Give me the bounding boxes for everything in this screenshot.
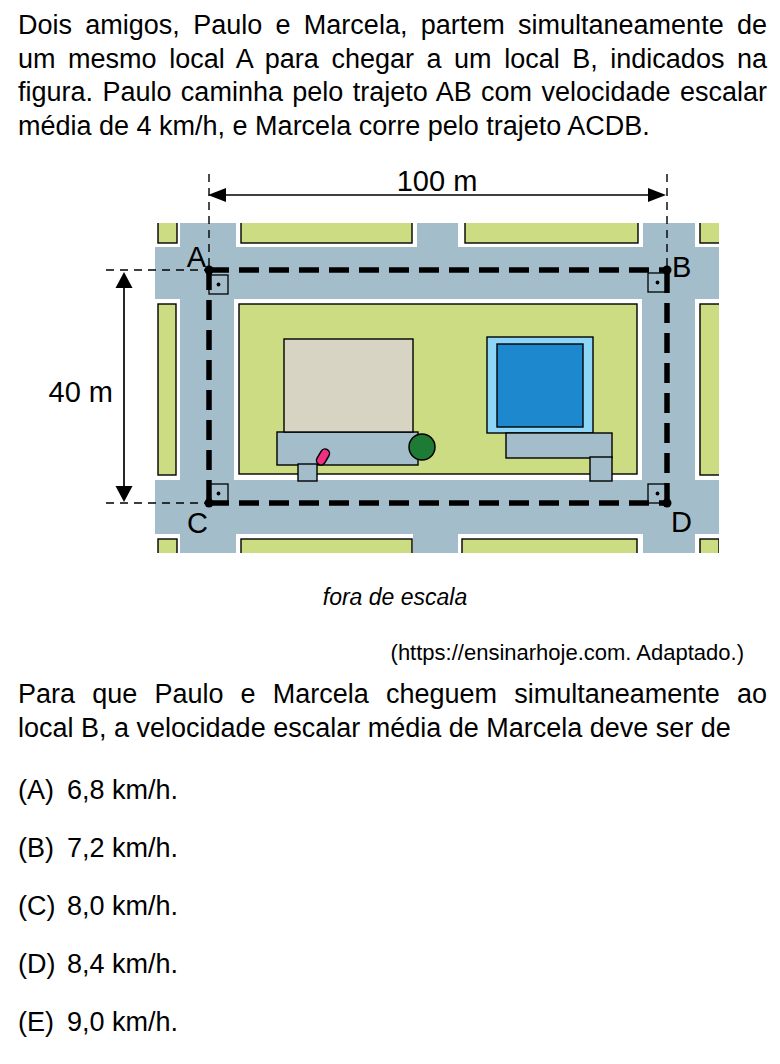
option-d-value: 8,4 km/h. — [67, 949, 178, 979]
option-d-label: (D) — [18, 948, 67, 981]
dimension-width: 100 m — [208, 165, 666, 202]
pool-patio — [506, 433, 612, 458]
arrowhead-right-icon — [648, 188, 666, 202]
point-d-label: D — [671, 506, 692, 538]
house-driveway — [298, 464, 317, 481]
city-block — [462, 539, 637, 556]
tree-icon — [409, 434, 435, 460]
city-block — [700, 539, 719, 556]
arrowhead-up-icon — [116, 272, 133, 288]
figure-source: (https://ensinarhoje.com. Adaptado.) — [300, 640, 744, 666]
house-building — [284, 339, 413, 432]
option-c-value: 8,0 km/h. — [67, 891, 178, 921]
dimension-width-label: 100 m — [397, 165, 478, 197]
city-block — [465, 220, 638, 243]
question-line: local B, a velocidade escalar média de M… — [18, 712, 767, 746]
pool-water — [497, 344, 583, 427]
intro-paragraph: Dois amigos, Paulo e Marcela, partem sim… — [18, 9, 767, 143]
option-c-label: (C) — [18, 890, 67, 923]
option-e-value: 9,0 km/h. — [67, 1007, 178, 1037]
city-block — [241, 220, 412, 243]
option-b-label: (B) — [18, 832, 67, 865]
intro-line: figura. Paulo caminha pelo trajeto AB co… — [18, 76, 767, 110]
option-b-value: 7,2 km/h. — [67, 833, 178, 863]
dimension-height: 40 m — [49, 272, 133, 502]
option-d: (D)8,4 km/h. — [18, 948, 758, 981]
dimension-height-label: 40 m — [49, 376, 113, 408]
intro-line: um mesmo local A para chegar a um local … — [18, 43, 767, 77]
option-b: (B)7,2 km/h. — [18, 832, 758, 865]
point-b-dot — [663, 266, 672, 275]
city-block — [158, 220, 177, 243]
city-block — [158, 304, 176, 475]
option-e: (E)9,0 km/h. — [18, 1006, 758, 1039]
option-a: (A)6,8 km/h. — [18, 774, 758, 807]
option-a-label: (A) — [18, 774, 67, 807]
arrowhead-left-icon — [208, 188, 226, 202]
arrowhead-down-icon — [116, 486, 133, 502]
question-line: Para que Paulo e Marcela cheguem simulta… — [18, 678, 767, 712]
intro-line: Dois amigos, Paulo e Marcela, partem sim… — [18, 9, 767, 43]
house-patio — [277, 432, 418, 465]
intro-line: média de 4 km/h, e Marcela corre pelo tr… — [18, 110, 767, 144]
point-b-label: B — [672, 251, 691, 283]
city-block — [158, 539, 177, 556]
option-a-value: 6,8 km/h. — [67, 775, 178, 805]
option-e-label: (E) — [18, 1006, 67, 1039]
city-block — [700, 304, 722, 475]
figure-caption: fora de escala — [155, 584, 635, 611]
question-paragraph: Para que Paulo e Marcela cheguem simulta… — [18, 678, 767, 745]
option-c: (C)8,0 km/h. — [18, 890, 758, 923]
city-block — [700, 220, 722, 243]
point-a-label: A — [187, 241, 207, 273]
pool-driveway — [590, 457, 612, 481]
point-c-label: C — [187, 507, 208, 539]
city-block — [241, 539, 412, 556]
